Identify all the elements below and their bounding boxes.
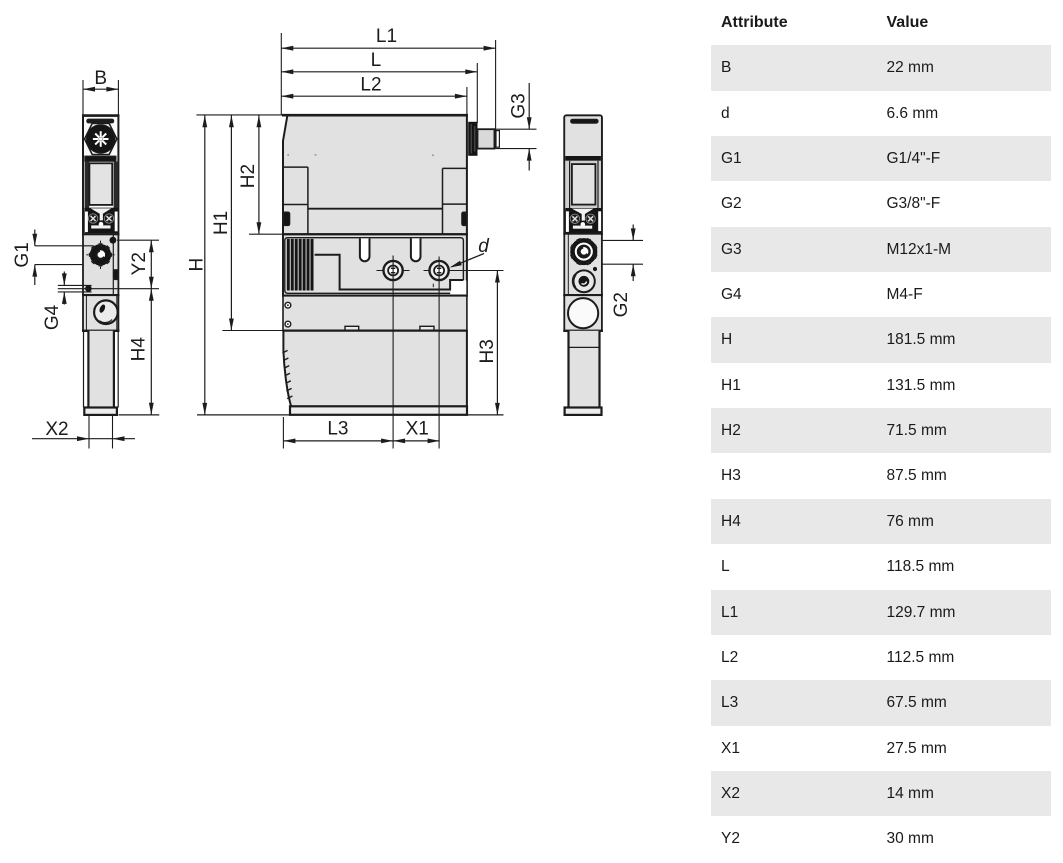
svg-text:H4: H4 [129, 337, 150, 362]
svg-text:G2: G2 [611, 292, 632, 317]
svg-text:X1: X1 [406, 419, 429, 440]
svg-text:L1: L1 [376, 26, 397, 47]
svg-text:H1: H1 [211, 211, 232, 235]
svg-text:G4: G4 [42, 304, 63, 330]
svg-text:H: H [186, 258, 207, 272]
svg-text:X2: X2 [45, 419, 68, 440]
svg-text:H2: H2 [238, 164, 259, 188]
svg-text:d: d [478, 236, 490, 257]
svg-text:G3: G3 [508, 93, 529, 118]
svg-text:B: B [94, 68, 107, 89]
svg-text:H3: H3 [477, 339, 498, 363]
svg-text:G1: G1 [12, 242, 33, 267]
svg-text:L2: L2 [360, 75, 381, 96]
svg-text:Y2: Y2 [129, 252, 150, 275]
svg-text:L3: L3 [327, 419, 348, 440]
svg-text:L: L [371, 50, 382, 71]
